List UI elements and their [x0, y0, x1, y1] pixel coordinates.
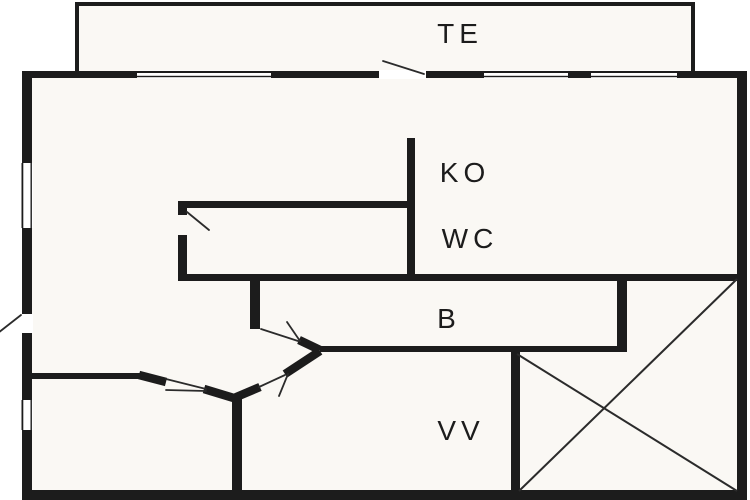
wall-vv-left [232, 395, 242, 491]
terrace-wall-top [75, 2, 695, 6]
terrace-wall-right [691, 2, 695, 71]
window-left-2-inner [31, 400, 32, 430]
entry-door-gap [21, 314, 33, 333]
floorplan-drawing: TE KO WC B VV [0, 0, 750, 500]
wall-b-right [617, 281, 627, 352]
room-label-b: B [437, 303, 461, 334]
bedroom-door-opening-line [166, 390, 206, 391]
wall-wc-top [178, 201, 415, 208]
room-label-vv: VV [437, 415, 484, 446]
wall-bottom [22, 490, 747, 500]
window-top-3-outer [591, 71, 677, 73]
window-top-2-outer [484, 71, 568, 73]
window-left-2-outer [22, 400, 24, 430]
window-top-1-inner [137, 76, 271, 77]
entry-door-leaf [0, 315, 21, 333]
wall-right [737, 71, 747, 500]
window-top-3-inner [591, 76, 677, 77]
window-left-1-outer [22, 163, 24, 228]
wall-b-left-stub [250, 281, 260, 329]
wall-left [22, 71, 32, 500]
window-top-2-inner [484, 76, 568, 77]
house-floor [27, 74, 742, 495]
wall-hall-north [178, 274, 747, 281]
wall-wc-left-upper [178, 201, 187, 215]
window-left-1-inner [31, 163, 32, 228]
room-label-te: TE [437, 18, 483, 49]
terrace-wall-left [75, 2, 79, 71]
wall-stairs-west [511, 352, 520, 491]
room-label-wc: WC [442, 223, 499, 254]
wall-b-bottom [320, 346, 627, 352]
room-label-ko: KO [440, 157, 490, 188]
wall-ko-divider [407, 138, 415, 281]
terrace-door-gap [379, 70, 426, 79]
floorplan-canvas: TE KO WC B VV [0, 0, 750, 500]
window-top-1-outer [137, 71, 271, 73]
wall-bedroom-top [32, 373, 140, 379]
